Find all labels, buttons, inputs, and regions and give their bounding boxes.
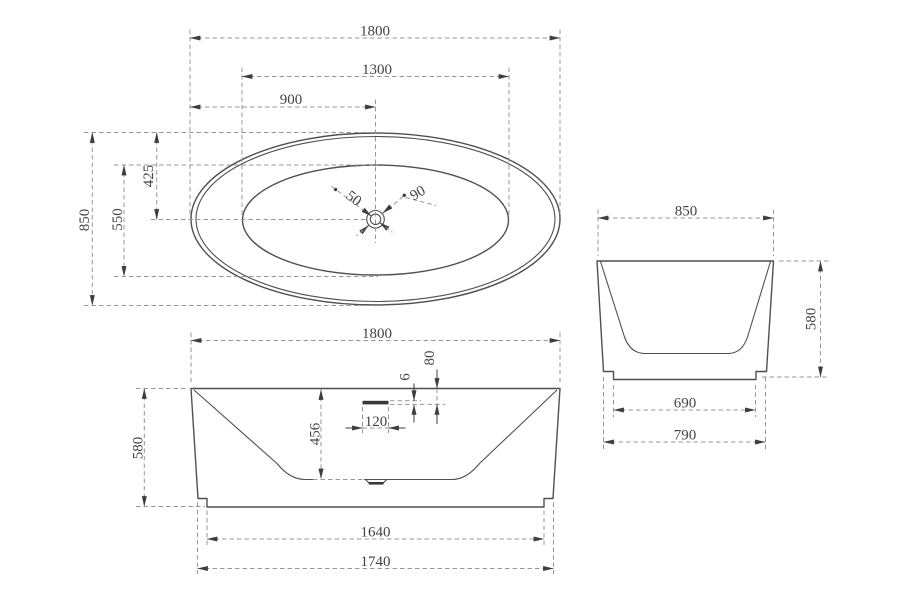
dim-front-inner-depth: 456: [308, 390, 324, 480]
leader-line: [388, 197, 403, 210]
tub-side-basin: [601, 262, 771, 354]
dim-label: 80: [422, 351, 438, 366]
dim-drain-hole-diameter: 50: [332, 186, 393, 232]
dim-label: 580: [804, 308, 820, 331]
arrow-stem: [364, 225, 369, 230]
dim-front-base-length: 1640: [207, 511, 544, 546]
dim-label: 1800: [360, 24, 390, 40]
tub-front-basin-right: [364, 390, 557, 480]
overflow-slot: [363, 401, 389, 405]
dim-label: 456: [308, 422, 324, 445]
dim-label: 690: [674, 396, 697, 412]
dim-front-overall-height: 580: [131, 389, 206, 507]
dim-label: 90: [407, 183, 428, 204]
dim-label: 1300: [362, 62, 392, 78]
arrow-stem: [383, 209, 388, 213]
dim-side-overall-width: 850: [598, 204, 774, 257]
leader-dot: [403, 194, 406, 197]
dim-side-bottom-width: 790: [604, 377, 766, 449]
dim-drain-flange-diameter: 90: [357, 183, 437, 236]
dim-top-drain-offset: 900: [190, 92, 376, 108]
top-view: 1800 1300 900 850 550 425: [77, 24, 560, 306]
tub-side-outline: [597, 261, 774, 380]
dim-label: 900: [280, 92, 303, 108]
tub-front-basin-left: [194, 390, 313, 480]
dim-label: 6: [398, 373, 414, 381]
dim-label: 1640: [361, 525, 391, 541]
dim-label: 550: [110, 208, 126, 231]
dim-overflow-slot-thickness: 6: [390, 373, 421, 423]
leader-tail: [385, 227, 392, 233]
dim-label: 850: [675, 204, 698, 220]
dim-label: 1740: [361, 554, 391, 570]
side-view: 850 580 690 790: [597, 204, 829, 450]
dim-top-center-offset: 425: [141, 133, 157, 220]
tub-front-outline: [191, 389, 560, 508]
dim-front-overall-length: 1800: [191, 326, 560, 385]
front-view: 1800 580 456 120 6: [131, 326, 561, 574]
bathtub-technical-drawing: 1800 1300 900 850 550 425: [0, 0, 900, 600]
dim-overflow-slot-width: 120: [346, 407, 406, 433]
dim-label: 580: [131, 437, 147, 460]
dim-side-base-width: 690: [614, 385, 756, 417]
dim-label: 1800: [362, 326, 392, 342]
tub-outer-rim-ellipse: [191, 133, 560, 305]
dim-label: 50: [343, 188, 365, 210]
dim-overflow-from-rim: 80: [390, 351, 445, 425]
leader-tail: [357, 230, 364, 236]
drawing-sheet: 1800 1300 900 850 550 425: [0, 0, 900, 600]
dim-label: 425: [141, 165, 157, 188]
dim-label: 850: [77, 209, 93, 232]
dim-label: 120: [365, 414, 388, 430]
dim-label: 790: [674, 428, 697, 444]
